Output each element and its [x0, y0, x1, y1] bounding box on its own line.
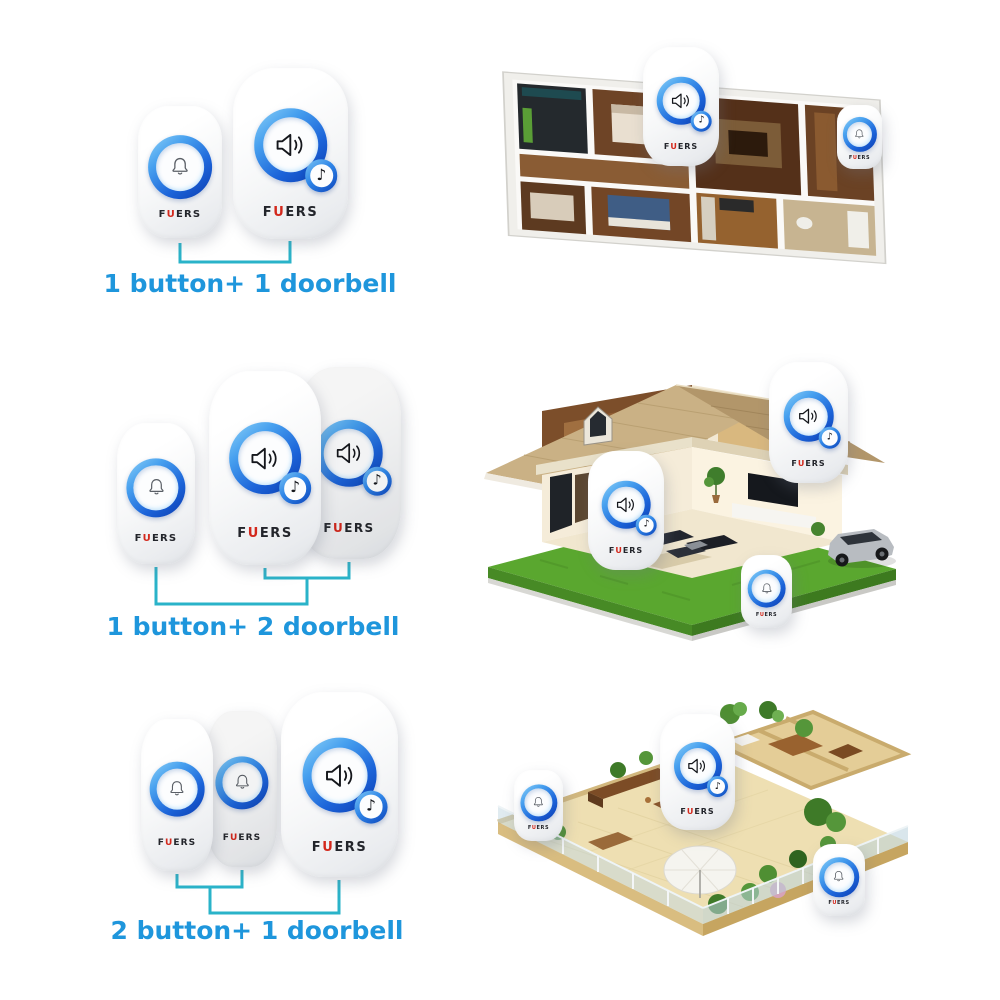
- bell-icon: [167, 779, 188, 800]
- speaker-icon: [322, 761, 357, 789]
- fuers-logo: FUERS: [769, 459, 848, 468]
- melody-circle: ♪: [636, 514, 657, 535]
- fuers-logo: FUERS: [813, 900, 865, 906]
- speaker-ring: ♪: [674, 742, 722, 790]
- doorbell-button: FUERS: [117, 423, 195, 564]
- melody-circle: ♪: [305, 160, 337, 192]
- bracket-kit3-main: [210, 880, 339, 913]
- speaker-icon: [248, 445, 281, 472]
- doorbell-button: FUERS: [741, 555, 792, 628]
- bell-icon: [232, 773, 252, 793]
- music-note-icon: ♪: [316, 168, 326, 184]
- melody-circle: ♪: [354, 790, 387, 823]
- melody-circle: ♪: [819, 427, 841, 449]
- melody-circle: ♪: [279, 473, 311, 505]
- fuers-logo: FUERS: [141, 838, 213, 848]
- button-ring: [150, 762, 205, 817]
- product-infographic: FUERS ♪ FUERS 1 button+ 1 doorbell: [0, 0, 1000, 1000]
- melody-circle: ♪: [707, 776, 728, 797]
- button-ring: [215, 756, 268, 809]
- fuers-logo: FUERS: [209, 526, 321, 541]
- fuers-logo: FUERS: [281, 840, 398, 855]
- fuers-logo: FUERS: [138, 209, 222, 220]
- doorbell-receiver: ♪ FUERS: [769, 362, 848, 483]
- speaker-ring: ♪: [657, 76, 706, 125]
- music-note-icon: ♪: [698, 116, 704, 126]
- music-note-icon: ♪: [366, 799, 376, 815]
- doorbell-button: FUERS: [138, 106, 222, 238]
- bell-icon: [759, 581, 774, 596]
- plant: [811, 522, 825, 536]
- kit-caption-3: 2 button+ 1 doorbell: [92, 916, 422, 945]
- speaker-ring: ♪: [229, 422, 301, 494]
- melody-circle: ♪: [691, 110, 712, 131]
- bell-icon: [168, 155, 192, 179]
- kit-caption-1: 1 button+ 1 doorbell: [85, 269, 415, 298]
- doorbell-button: FUERS: [514, 770, 563, 841]
- speaker-ring: ♪: [316, 420, 383, 487]
- bracket-kit2-main: [156, 567, 307, 604]
- speaker-ring: ♪: [602, 480, 651, 529]
- speaker-ring: ♪: [783, 391, 834, 442]
- doorbell-receiver: ♪ FUERS: [233, 68, 348, 239]
- melody-circle: ♪: [362, 467, 391, 496]
- fuers-logo: FUERS: [643, 142, 719, 151]
- fuers-logo: FUERS: [514, 825, 563, 831]
- bracket-kit1: [180, 241, 290, 262]
- fuers-logo: FUERS: [117, 533, 195, 544]
- fuers-logo: FUERS: [233, 205, 348, 220]
- doorbell-button: FUERS: [837, 105, 882, 169]
- fuers-logo: FUERS: [660, 807, 735, 816]
- button-ring: [520, 784, 557, 821]
- music-note-icon: ♪: [372, 474, 381, 488]
- speaker-icon: [797, 407, 821, 426]
- speaker-icon: [670, 91, 693, 109]
- doorbell-receiver: ♪ FUERS: [643, 47, 719, 166]
- fuers-logo: FUERS: [741, 612, 792, 618]
- bell-icon: [832, 870, 847, 885]
- speaker-icon: [273, 131, 307, 159]
- bell-icon: [853, 128, 866, 141]
- music-note-icon: ♪: [643, 520, 649, 530]
- doorbell-button: FUERS: [141, 719, 213, 871]
- fuers-logo: FUERS: [207, 833, 277, 843]
- bell-icon: [532, 796, 546, 810]
- doorbell-button: FUERS: [813, 844, 865, 916]
- button-ring: [819, 857, 859, 897]
- speaker-icon: [686, 757, 708, 775]
- music-note-icon: ♪: [827, 433, 833, 443]
- bell-icon: [145, 477, 167, 499]
- bracket-kit3-buttons: [177, 870, 242, 887]
- fuers-logo: FUERS: [588, 546, 664, 555]
- speaker-ring: ♪: [302, 738, 377, 813]
- button-ring: [842, 117, 876, 151]
- music-note-icon: ♪: [715, 782, 721, 792]
- button-ring: [747, 569, 786, 608]
- music-note-icon: ♪: [290, 481, 300, 497]
- speaker-icon: [615, 495, 638, 513]
- suv-car: [828, 529, 896, 568]
- speaker-icon: [334, 441, 365, 466]
- doorbell-receiver: ♪ FUERS: [209, 371, 321, 565]
- doorbell-receiver: ♪ FUERS: [281, 692, 398, 877]
- kit-caption-2: 1 button+ 2 doorbell: [88, 612, 418, 641]
- button-ring: [148, 135, 212, 199]
- doorbell-receiver: ♪ FUERS: [660, 714, 735, 830]
- doorbell-button: FUERS: [207, 711, 277, 867]
- doorbell-receiver: ♪ FUERS: [588, 451, 664, 570]
- speaker-ring: ♪: [254, 108, 328, 182]
- fuers-logo: FUERS: [837, 155, 882, 161]
- button-ring: [126, 458, 185, 517]
